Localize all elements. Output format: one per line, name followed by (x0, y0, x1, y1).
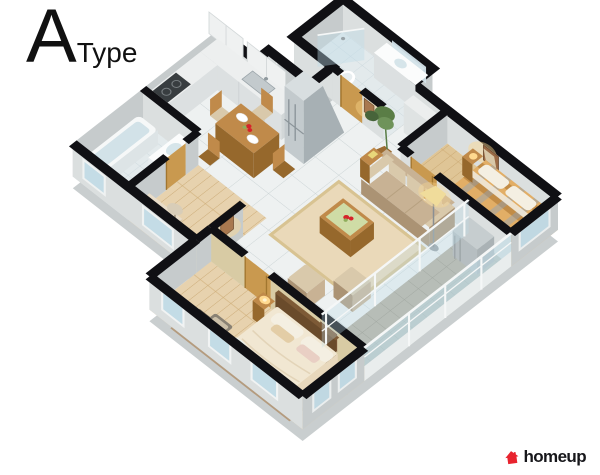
house-icon (504, 450, 520, 465)
page: AType homeup (0, 0, 600, 475)
floor-plan-render (0, 0, 600, 475)
plan-title: AType (26, 6, 137, 69)
plan-type-letter: A (26, 6, 75, 68)
plan-type-word: Type (77, 37, 138, 69)
brand-name: homeup (523, 447, 586, 467)
brand-logo: homeup (504, 447, 586, 467)
